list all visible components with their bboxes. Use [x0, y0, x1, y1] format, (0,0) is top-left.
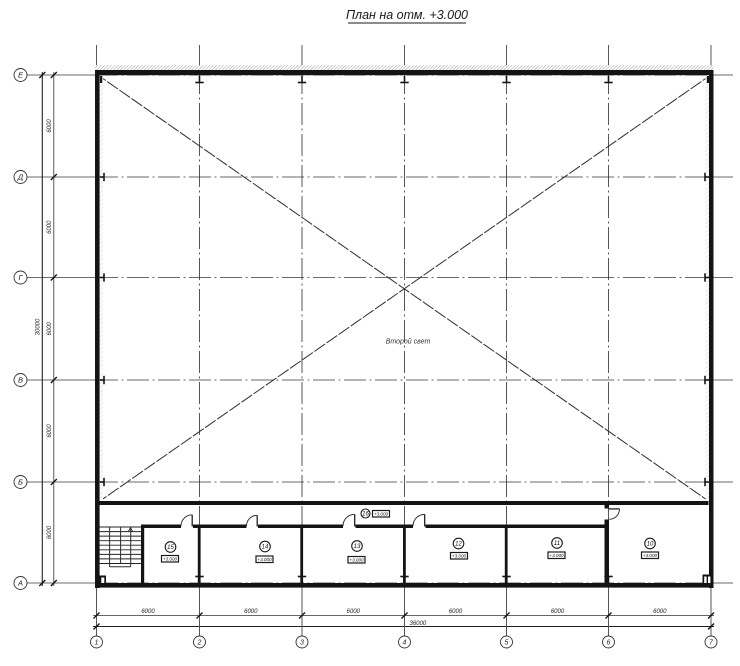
svg-text:+3.000: +3.000 [349, 558, 364, 563]
svg-text:1: 1 [95, 640, 99, 647]
svg-text:15: 15 [167, 545, 174, 551]
svg-text:36000: 36000 [410, 621, 427, 627]
svg-text:План на отм. +3.000: План на отм. +3.000 [346, 8, 468, 22]
svg-text:Д: Д [17, 173, 24, 182]
svg-text:6000: 6000 [47, 321, 53, 335]
svg-text:6000: 6000 [141, 609, 155, 615]
svg-text:Второй свет: Второй свет [386, 338, 431, 346]
svg-text:4: 4 [403, 640, 407, 647]
svg-text:14: 14 [262, 545, 269, 551]
svg-text:6000: 6000 [244, 609, 258, 615]
svg-text:16: 16 [362, 512, 369, 518]
svg-text:В: В [18, 376, 23, 385]
svg-text:+3.000: +3.000 [163, 557, 178, 562]
svg-text:6000: 6000 [653, 609, 667, 615]
svg-text:6000: 6000 [47, 525, 53, 539]
svg-text:А: А [17, 579, 23, 588]
svg-text:13: 13 [354, 544, 361, 550]
svg-text:6: 6 [607, 640, 611, 647]
svg-text:6000: 6000 [449, 609, 463, 615]
svg-text:2: 2 [197, 640, 202, 647]
svg-text:10: 10 [647, 542, 654, 548]
svg-text:6000: 6000 [47, 220, 53, 234]
svg-text:11: 11 [554, 541, 560, 547]
svg-text:5: 5 [505, 640, 509, 647]
svg-text:+3.000: +3.000 [257, 557, 272, 562]
svg-text:12: 12 [455, 542, 462, 548]
svg-text:6000: 6000 [47, 424, 53, 438]
svg-text:6000: 6000 [47, 119, 53, 133]
svg-text:+3.000: +3.000 [452, 554, 467, 559]
svg-text:3: 3 [300, 640, 304, 647]
svg-text:+3.000: +3.000 [374, 512, 389, 517]
svg-text:30000: 30000 [36, 318, 42, 335]
svg-text:6000: 6000 [551, 609, 565, 615]
svg-text:+3.000: +3.000 [643, 553, 658, 558]
svg-text:6000: 6000 [347, 609, 361, 615]
svg-text:+3.000: +3.000 [549, 553, 564, 558]
svg-text:Б: Б [18, 478, 23, 487]
